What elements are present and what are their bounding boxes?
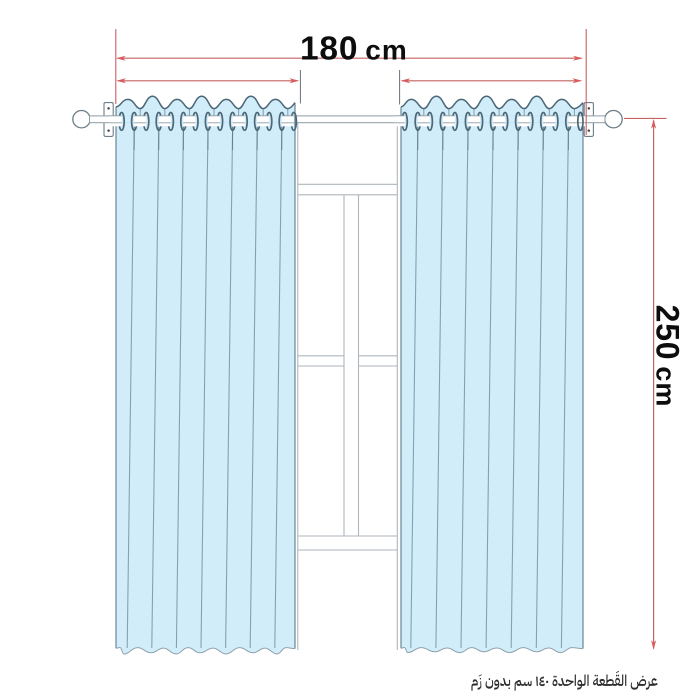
- svg-text:250cm: 250cm: [650, 305, 686, 408]
- svg-text:180cm: 180cm: [300, 31, 408, 68]
